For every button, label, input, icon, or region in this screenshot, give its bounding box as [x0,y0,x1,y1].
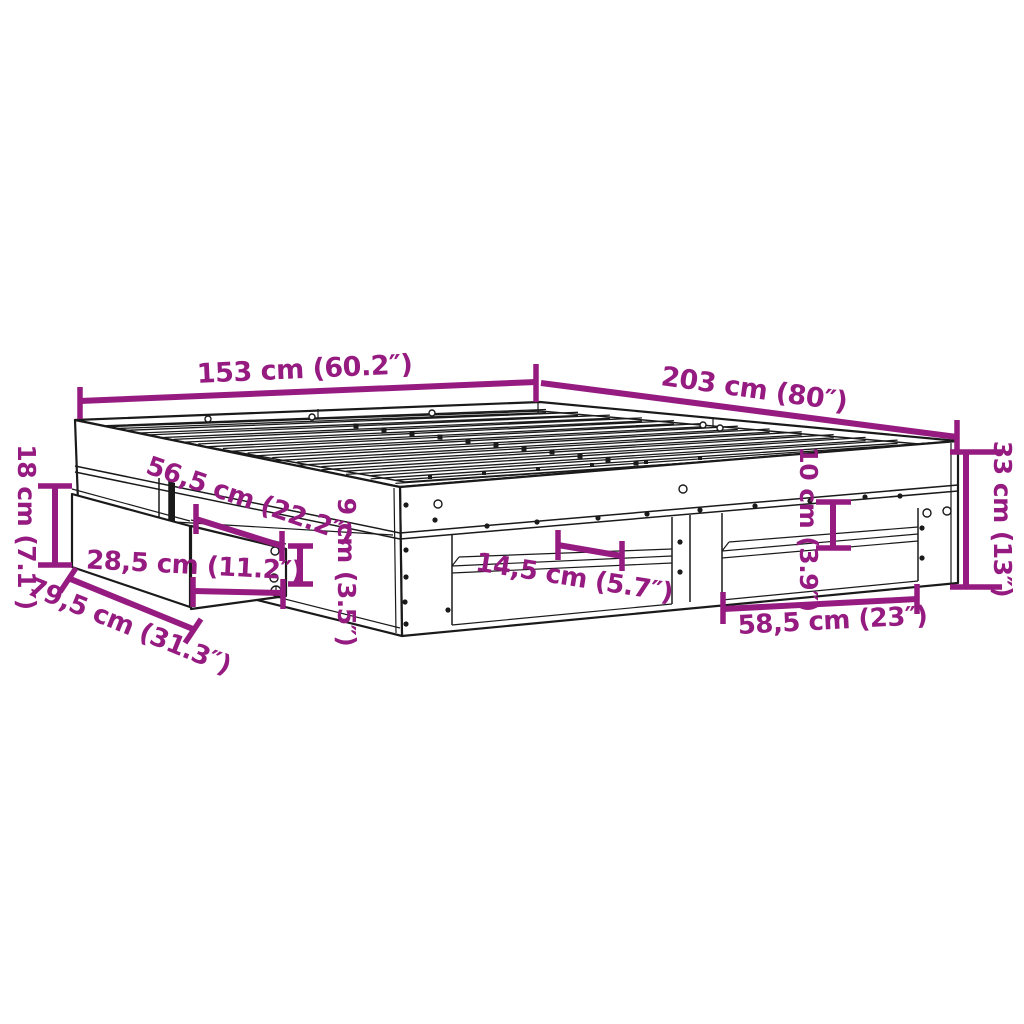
dim-width-label: 153 cm (60.2″) [196,349,413,390]
hole [943,507,951,515]
bed-frame-dimension-diagram: 153 cm (60.2″) 203 cm (80″) 33 cm (13″) … [0,0,1024,1024]
dim-shelf-opening-height-label: 10 cm (3.9″) [794,446,823,611]
dim-drawer-inner-width-line [193,591,283,593]
dim-frame-height: 33 cm (13″) [950,441,1017,597]
hole [205,416,211,422]
dim-drawer-side-height-label: 9 cm (3.5″) [332,498,361,646]
dim-frame-height-label: 33 cm (13″) [988,441,1017,597]
drawer-hole [271,547,279,555]
hole [434,500,442,508]
hole [309,414,315,420]
hole [679,485,687,493]
hole [700,422,706,428]
hole [429,410,435,416]
hole [717,425,723,431]
hole [923,509,931,517]
